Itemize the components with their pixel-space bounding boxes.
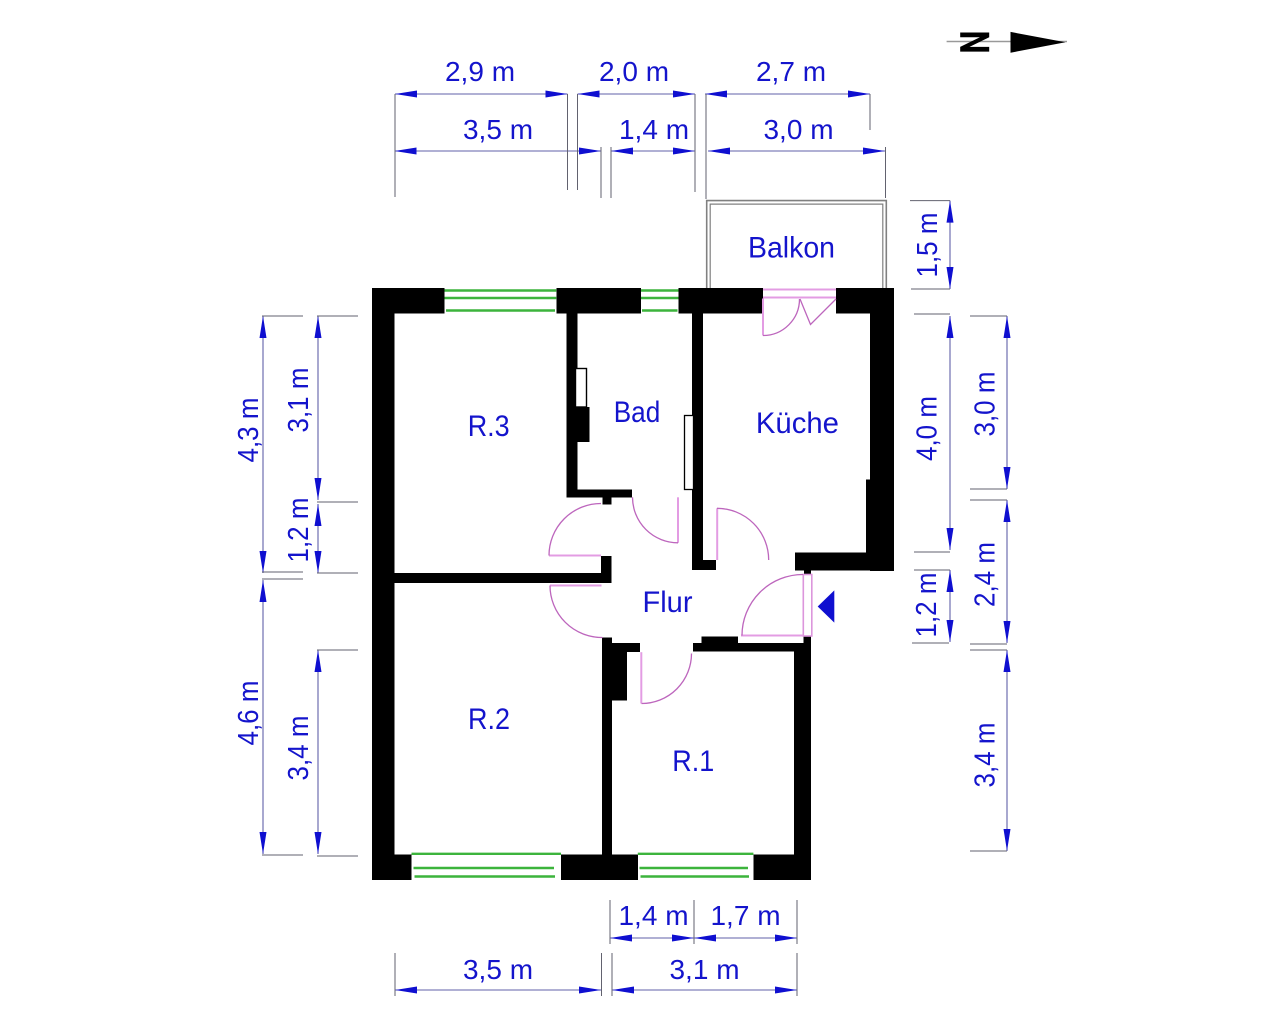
svg-text:1,2 m: 1,2 m [283, 498, 315, 563]
svg-text:3,5 m: 3,5 m [463, 954, 533, 985]
svg-text:Bad: Bad [614, 396, 661, 429]
svg-text:3,1 m: 3,1 m [669, 954, 739, 985]
svg-text:R.1: R.1 [672, 745, 714, 778]
svg-text:R.3: R.3 [468, 410, 510, 443]
svg-text:1,2 m: 1,2 m [911, 573, 943, 638]
svg-text:3,0 m: 3,0 m [970, 372, 1002, 437]
svg-text:3,4 m: 3,4 m [283, 716, 315, 781]
svg-text:2,4 m: 2,4 m [970, 542, 1002, 607]
svg-text:3,5 m: 3,5 m [463, 114, 533, 145]
svg-text:1,4 m: 1,4 m [618, 900, 688, 931]
svg-text:3,1 m: 3,1 m [283, 368, 315, 433]
svg-text:4,6 m: 4,6 m [233, 681, 265, 746]
svg-text:2,7 m: 2,7 m [756, 56, 826, 87]
svg-text:2,9 m: 2,9 m [445, 56, 515, 87]
svg-text:2,0 m: 2,0 m [599, 56, 669, 87]
svg-text:1,5 m: 1,5 m [912, 213, 944, 278]
svg-text:Balkon: Balkon [748, 232, 835, 265]
svg-text:4,0 m: 4,0 m [912, 396, 944, 461]
svg-text:4,3 m: 4,3 m [233, 398, 265, 463]
svg-text:3,4 m: 3,4 m [970, 723, 1002, 788]
svg-text:3,0 m: 3,0 m [763, 114, 833, 145]
svg-text:Flur: Flur [643, 586, 693, 619]
svg-text:R.2: R.2 [468, 703, 510, 736]
svg-text:1,7 m: 1,7 m [710, 900, 780, 931]
svg-text:1,4 m: 1,4 m [619, 114, 689, 145]
svg-text:Küche: Küche [756, 407, 839, 440]
